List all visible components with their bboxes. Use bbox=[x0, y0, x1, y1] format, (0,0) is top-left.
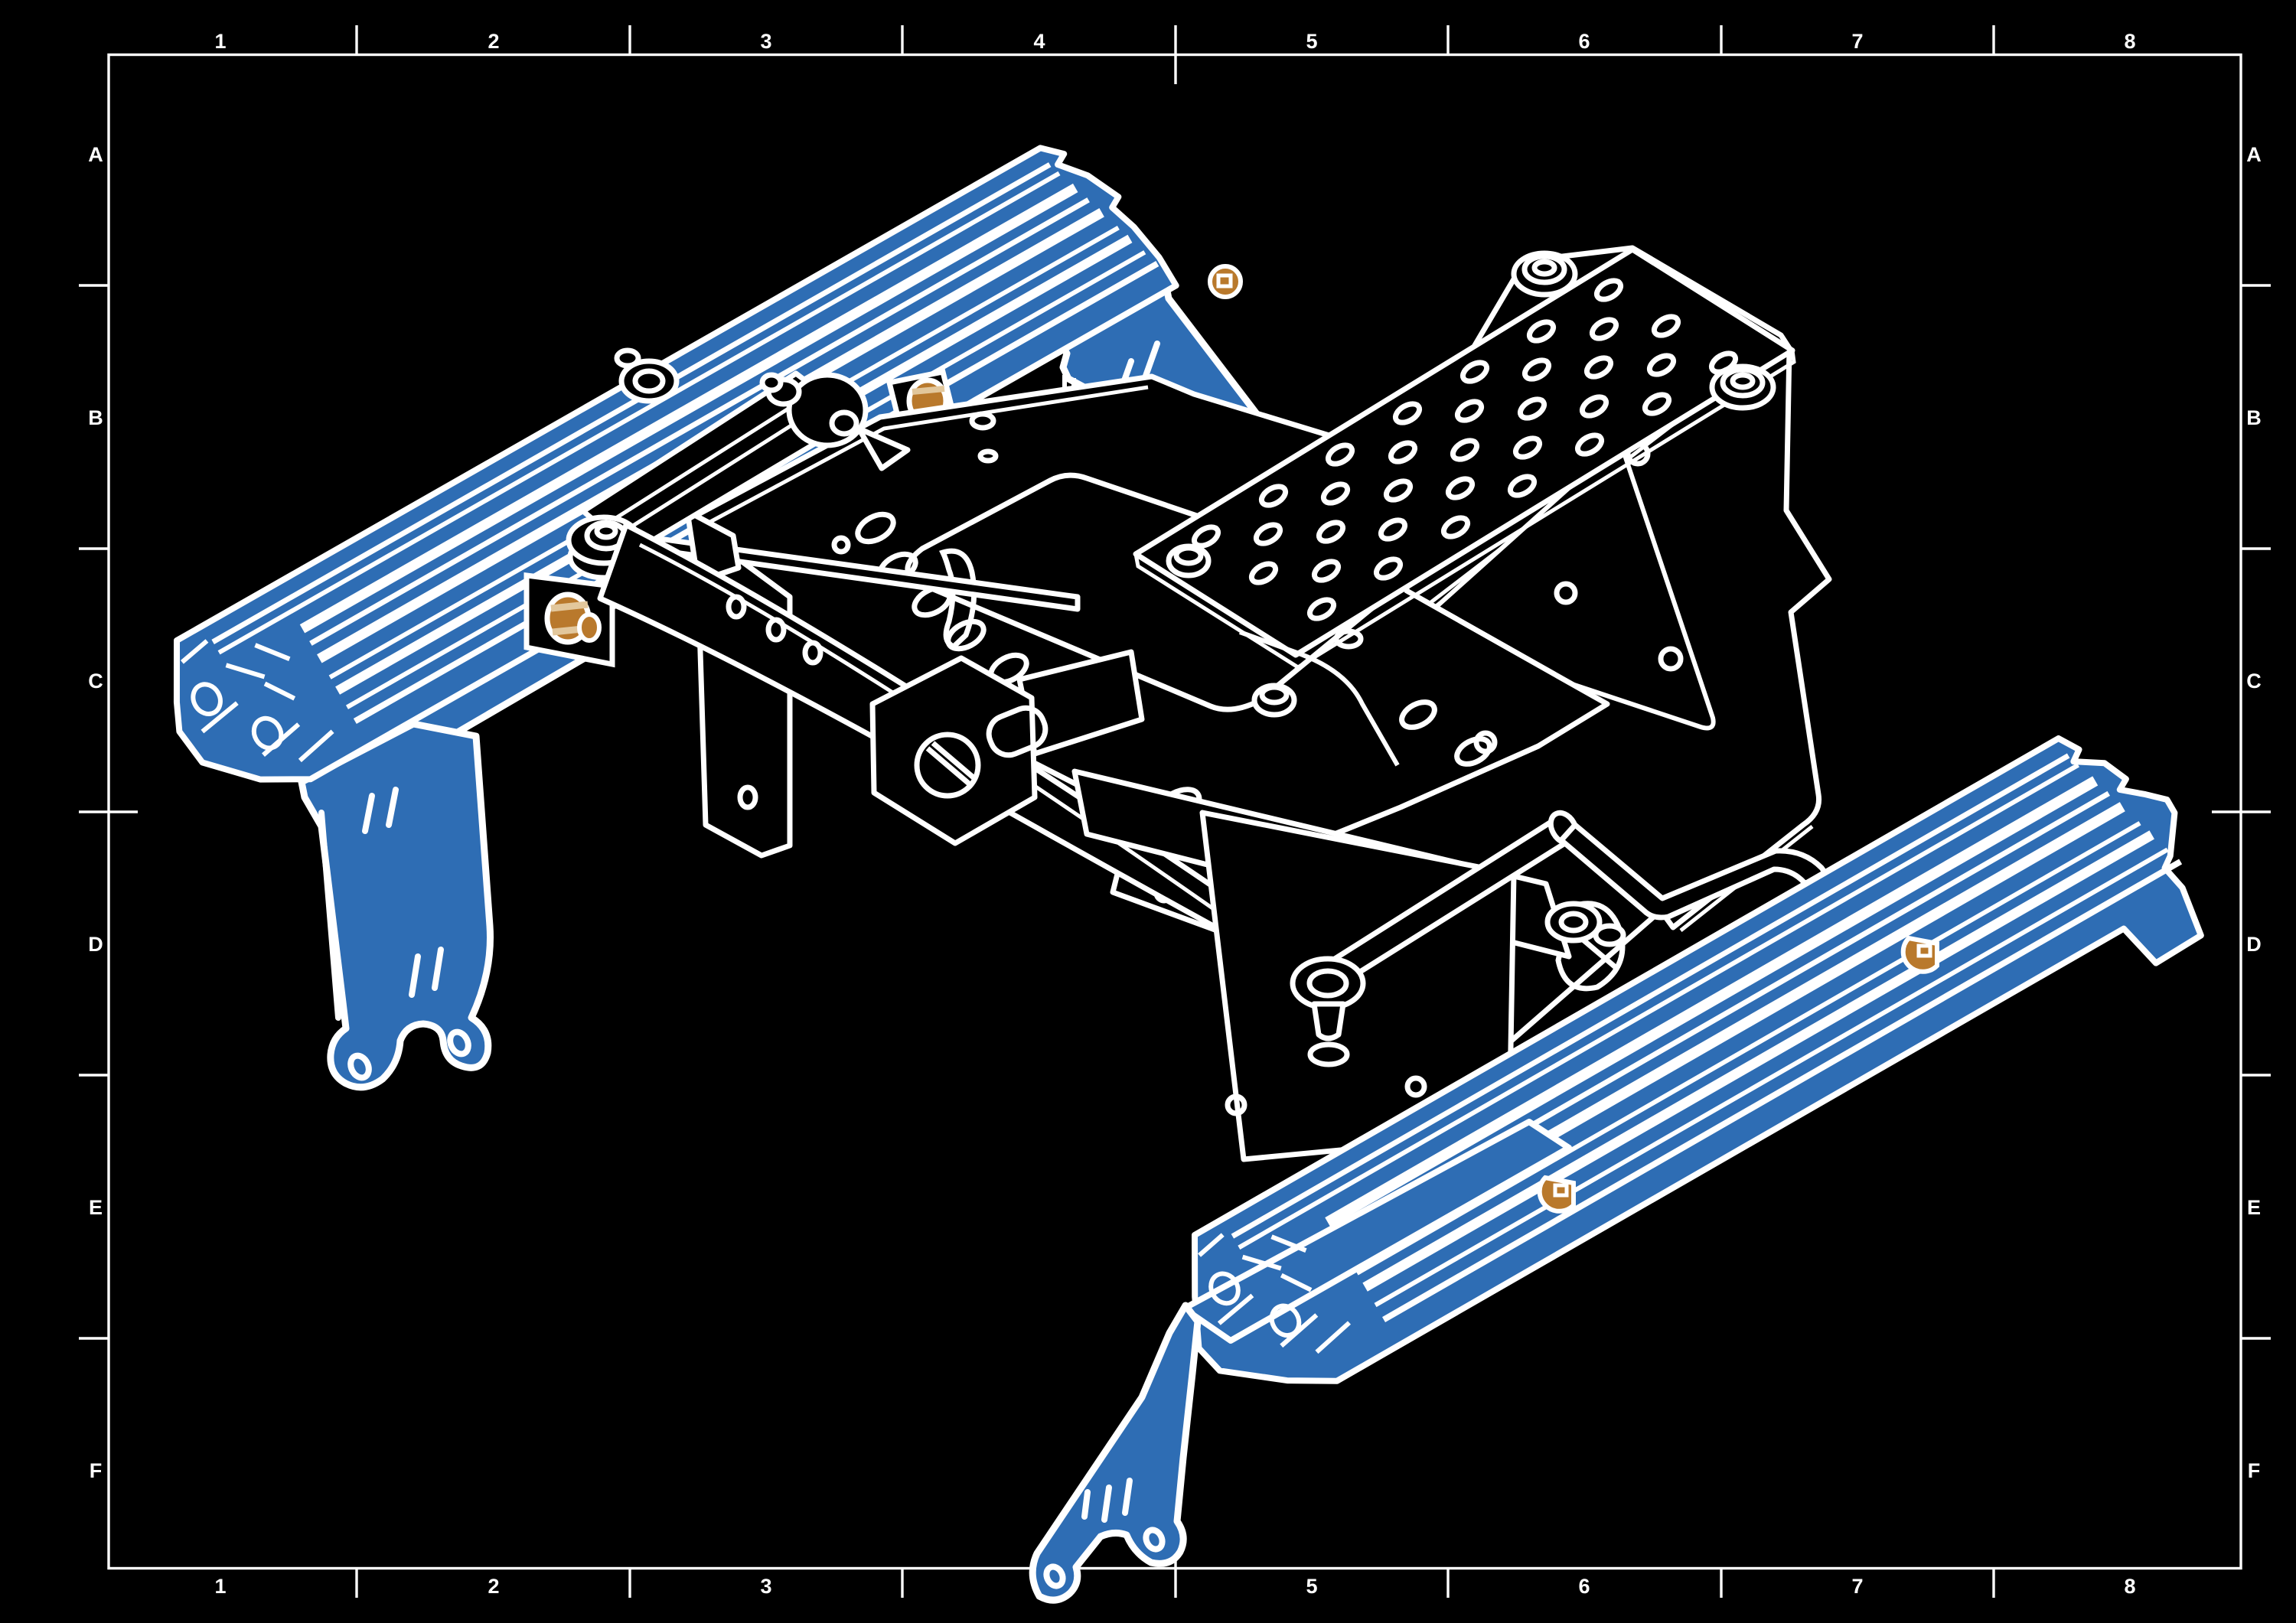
svg-text:F: F bbox=[2248, 1459, 2261, 1482]
svg-text:5: 5 bbox=[1306, 1575, 1317, 1598]
svg-text:2: 2 bbox=[488, 1575, 499, 1598]
svg-text:5: 5 bbox=[1306, 30, 1317, 53]
svg-text:E: E bbox=[89, 1196, 103, 1219]
svg-text:C: C bbox=[2246, 670, 2262, 693]
svg-text:6: 6 bbox=[1578, 1575, 1590, 1598]
svg-text:B: B bbox=[2246, 406, 2262, 429]
svg-text:F: F bbox=[90, 1459, 103, 1482]
svg-text:6: 6 bbox=[1578, 30, 1590, 53]
svg-text:1: 1 bbox=[214, 30, 226, 53]
svg-text:3: 3 bbox=[760, 30, 771, 53]
svg-text:D: D bbox=[2246, 933, 2262, 956]
svg-text:8: 8 bbox=[2124, 1575, 2135, 1598]
svg-text:3: 3 bbox=[760, 1575, 771, 1598]
svg-text:1: 1 bbox=[214, 1575, 226, 1598]
svg-text:A: A bbox=[2246, 143, 2262, 166]
svg-text:D: D bbox=[88, 933, 103, 956]
svg-text:8: 8 bbox=[2124, 30, 2135, 53]
svg-text:2: 2 bbox=[488, 30, 499, 53]
svg-text:A: A bbox=[88, 143, 103, 166]
svg-text:C: C bbox=[88, 670, 103, 693]
svg-text:7: 7 bbox=[1851, 1575, 1863, 1598]
svg-text:B: B bbox=[88, 406, 103, 429]
svg-text:E: E bbox=[2247, 1196, 2261, 1219]
svg-text:7: 7 bbox=[1851, 30, 1863, 53]
svg-text:4: 4 bbox=[1033, 30, 1045, 53]
